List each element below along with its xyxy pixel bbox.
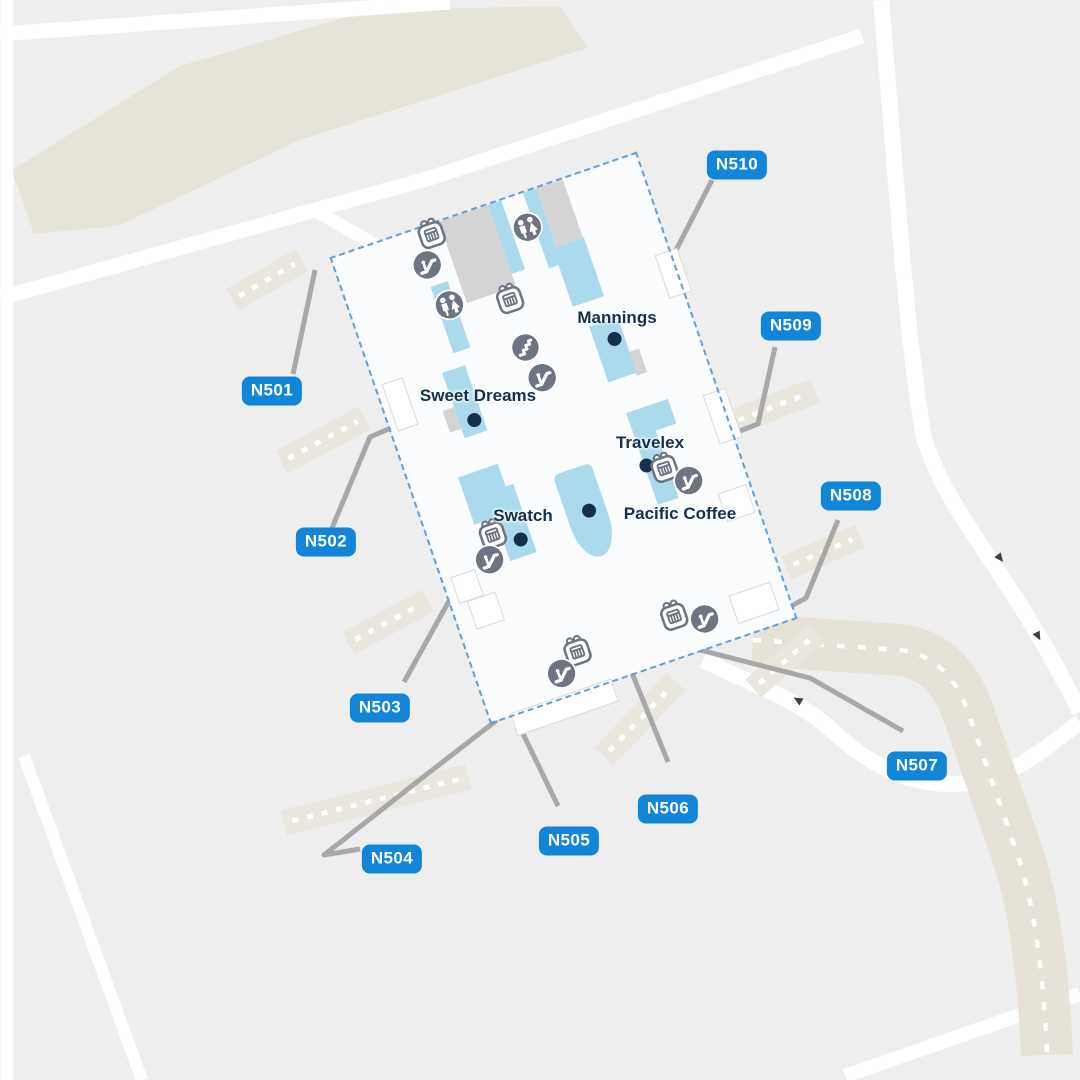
gate-marker-n509[interactable]: N509 [761, 312, 821, 341]
gate-marker-n506[interactable]: N506 [638, 795, 698, 824]
gate-marker-n501[interactable]: N501 [242, 377, 302, 406]
store-label-sweet-dreams[interactable]: Sweet Dreams [420, 386, 536, 406]
store-label-travelex[interactable]: Travelex [616, 433, 684, 453]
gate-marker-n508[interactable]: N508 [821, 482, 881, 511]
store-label-mannings[interactable]: Mannings [577, 308, 656, 328]
room-outline [728, 582, 779, 625]
gate-marker-n503[interactable]: N503 [350, 694, 410, 723]
gate-marker-n502[interactable]: N502 [296, 528, 356, 557]
store-label-swatch[interactable]: Swatch [493, 506, 553, 526]
gate-marker-n504[interactable]: N504 [362, 845, 422, 874]
gate-marker-n507[interactable]: N507 [887, 752, 947, 781]
stairs-icon[interactable] [506, 328, 544, 366]
airport-map: N501N502N503N504N505N506N507N508N509N510… [0, 0, 1080, 1080]
escalator-icon[interactable] [685, 599, 724, 638]
shop-block-travelex [626, 399, 676, 438]
store-label-pacific-coffee[interactable]: Pacific Coffee [624, 504, 736, 524]
escalator-icon[interactable] [408, 245, 447, 284]
gate-marker-n510[interactable]: N510 [707, 151, 767, 180]
shop-block [553, 237, 604, 306]
gate-marker-n505[interactable]: N505 [539, 827, 599, 856]
